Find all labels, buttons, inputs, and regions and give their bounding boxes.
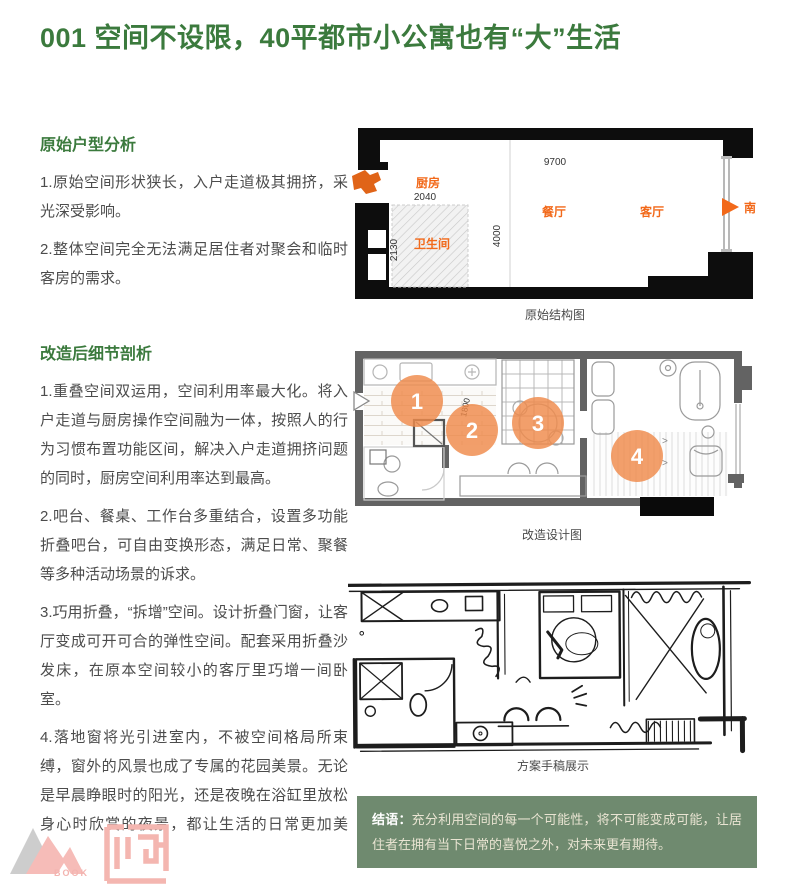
svg-text:>: >	[662, 436, 668, 447]
section-original-analysis: 原始户型分析 1.原始空间形状狭长，入户走道极其拥挤，采光深受影响。 2.整体空…	[40, 131, 348, 302]
south-arrow-icon	[722, 198, 739, 216]
section-heading: 改造后细节剖析	[40, 340, 348, 364]
seal-logo	[107, 827, 166, 881]
dim-bath-height: 2130	[389, 238, 400, 261]
marker-1: 1	[411, 389, 423, 414]
living-label: 客厅	[639, 204, 664, 219]
marker-3: 3	[532, 411, 544, 436]
paragraph: 2.吧台、餐桌、工作台多重结合，设置多功能折叠吧台，可自由变换形态，满足日常、聚…	[40, 502, 348, 589]
figure-caption: 方案手稿展示	[348, 757, 758, 774]
sketch-strokes	[348, 583, 751, 754]
logo-book-text: BOOK	[54, 868, 89, 878]
original-floor-plan: 厨房 餐厅 客厅 卫生间 南 9700 2040 4000 2130	[350, 126, 760, 306]
svg-text:>: >	[662, 458, 668, 469]
marker-4: 4	[631, 444, 644, 469]
dining-label: 餐厅	[542, 204, 566, 219]
paragraph: 1.原始空间形状狭长，入户走道极其拥挤，采光深受影响。	[40, 168, 348, 226]
bathroom-label: 卫生间	[414, 236, 450, 251]
conclusion-text: 充分利用空间的每一个可能性，将不可能变成可能，让居住者在拥有当下日常的喜悦之外，…	[372, 812, 742, 852]
section-heading: 原始户型分析	[40, 131, 348, 155]
entry-door-icon	[352, 170, 381, 194]
dim-bath-width: 2040	[414, 192, 437, 203]
page-title: 001 空间不设限，40平都市小公寓也有“大”生活	[40, 16, 621, 55]
south-label: 南	[744, 200, 756, 215]
kitchen-label: 厨房	[416, 175, 440, 190]
paragraph: 3.巧用折叠，“拆增”空间。设计折叠门窗，让客厅变成可开可合的弹性空间。配套采用…	[40, 598, 348, 714]
logos-svg: BOOK	[8, 820, 178, 885]
paragraph: 1.重叠空间双运用，空间利用率最大化。将入户走道与厨房操作空间融为一体，按照人的…	[40, 377, 348, 493]
m-book-logo: BOOK	[10, 828, 89, 878]
dim-total-width: 9700	[544, 157, 567, 168]
figure-caption: 改造设计图	[347, 526, 757, 543]
hand-sketch-plan	[348, 574, 758, 764]
figure-caption: 原始结构图	[350, 306, 760, 323]
plan-shaft	[368, 230, 386, 280]
figure-renovated-plan: >> 1800 1 2 3 4	[352, 346, 752, 521]
conclusion-label: 结语：	[372, 812, 412, 827]
article-page: 001 空间不设限，40平都市小公寓也有“大”生活 原始户型分析 1.原始空间形…	[0, 0, 790, 885]
renovated-floor-plan: >> 1800 1 2 3 4	[352, 346, 752, 521]
marker-2: 2	[466, 418, 478, 443]
logo-area: BOOK	[8, 820, 178, 885]
figure-sketch	[348, 574, 758, 764]
conclusion-box: 结语：充分利用空间的每一个可能性，将不可能变成可能，让居住者在拥有当下日常的喜悦…	[357, 796, 757, 868]
balcony-block	[640, 497, 714, 516]
figure-original-plan: 厨房 餐厅 客厅 卫生间 南 9700 2040 4000 2130	[350, 126, 760, 306]
paragraph: 2.整体空间完全无法满足居住者对聚会和临时客房的需求。	[40, 235, 348, 293]
section-renovation-details: 改造后细节剖析 1.重叠空间双运用，空间利用率最大化。将入户走道与厨房操作空间融…	[40, 340, 348, 877]
dim-depth: 4000	[492, 224, 503, 247]
